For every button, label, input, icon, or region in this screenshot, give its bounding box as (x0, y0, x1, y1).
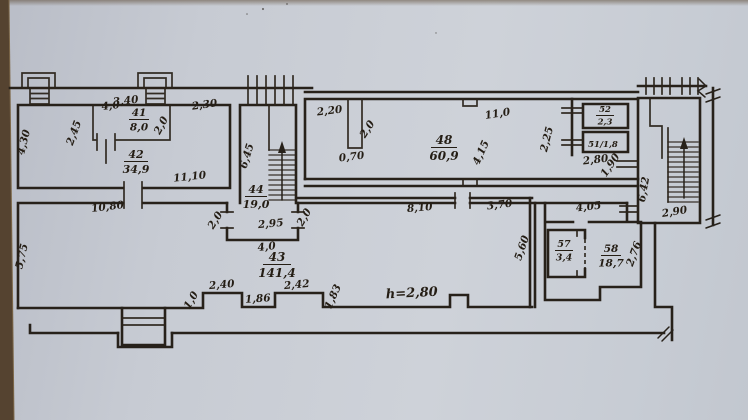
dimension-label: 0,70 (338, 149, 366, 164)
dimension-label: 2,42 (282, 278, 310, 292)
stair-hatch-above (248, 76, 293, 105)
dimension-label: 2,30 (190, 97, 219, 113)
dimension-label: 4,15 (471, 139, 492, 167)
dimension-label: 2,40 (207, 278, 235, 292)
dimension-label: h=2,80 (385, 285, 438, 303)
porch-box (122, 308, 165, 345)
dimension-label: 2,45 (64, 119, 84, 148)
room-43-door-jambs (455, 193, 470, 208)
room-label-42: 4234,9 (123, 148, 150, 176)
room-area: 19,0 (243, 198, 270, 211)
dimension-label: 11,0 (484, 106, 512, 122)
room-43-bottom-stepped-wall (18, 293, 532, 308)
dimension-label: 2,0 (151, 114, 171, 137)
room-area: 60,9 (429, 149, 459, 163)
opening-42-43-jambs (124, 182, 142, 208)
room-number: 57 (557, 239, 571, 250)
right-stair-treads (668, 142, 698, 202)
room-label-inline: 51/1,8 (588, 140, 618, 150)
right-staircase-box (638, 98, 700, 223)
chimney-symbols (22, 73, 172, 88)
dimension-label: 4,0 (257, 240, 277, 254)
dimension-label: 10,80 (91, 199, 126, 215)
floor-plan-drawing: 418,04234,943141,44419,04860,9522,3573,4… (0, 0, 748, 420)
paper-specks (246, 3, 436, 34)
room-48-bottom-wall (305, 179, 638, 186)
left-stair-arrowhead (278, 141, 286, 153)
room-label-43: 43141,4 (258, 250, 296, 280)
room-43-right-wall (530, 198, 535, 307)
room-48-partition-stub (348, 99, 362, 148)
room-number: 48 (436, 133, 453, 147)
room-number: 44 (248, 183, 263, 196)
room-area: 34,9 (123, 163, 150, 176)
room-label-41: 418,0 (129, 107, 149, 134)
right-stair-pocket (650, 98, 662, 158)
room-area: 8,0 (130, 122, 149, 134)
room-area: 3,4 (556, 253, 573, 264)
dimension-label: 3,70 (486, 197, 514, 212)
room-label-44: 4419,0 (243, 183, 270, 211)
rooms-57-58-walls (545, 203, 641, 300)
dimension-label: 4,05 (575, 200, 602, 215)
dimension-label: 4,0 (101, 99, 121, 113)
room-label-57: 573,4 (555, 239, 573, 264)
room-area: 2,3 (597, 118, 613, 128)
room-label-58: 5818,7 (598, 243, 624, 270)
bottom-exterior-wall (30, 325, 664, 333)
room-number: 42 (128, 148, 144, 161)
room-label-52: 522,3 (596, 105, 614, 128)
dimension-label: 2,20 (315, 103, 344, 118)
dimension-label: 2,0 (357, 118, 378, 141)
room-area: 18,7 (598, 258, 624, 270)
right-lower-wall (655, 223, 672, 340)
dimension-label: 11,10 (173, 169, 208, 184)
dimension-label: 2,95 (256, 217, 284, 231)
dimension-label: 2,90 (660, 204, 689, 220)
dimension-label: 5,75 (13, 243, 30, 271)
floor-plan-sheet: 418,04234,943141,44419,04860,9522,3573,4… (0, 0, 748, 420)
porch-steps (122, 318, 165, 325)
room-48-pilasters (463, 99, 477, 186)
room-number: 58 (604, 243, 619, 255)
room-number: 52 (599, 105, 611, 115)
room-43-top-left-wall (18, 203, 227, 308)
room-area: 141,4 (258, 266, 296, 280)
room-number: 41 (132, 107, 147, 119)
window-symbols (30, 88, 165, 104)
room-label-48: 4860,9 (429, 133, 459, 163)
dimension-label: 8,10 (406, 201, 433, 215)
right-stair-arrowhead (680, 137, 688, 149)
dimension-label: 1,86 (245, 292, 272, 306)
dimension-label: 2,25 (538, 125, 556, 154)
